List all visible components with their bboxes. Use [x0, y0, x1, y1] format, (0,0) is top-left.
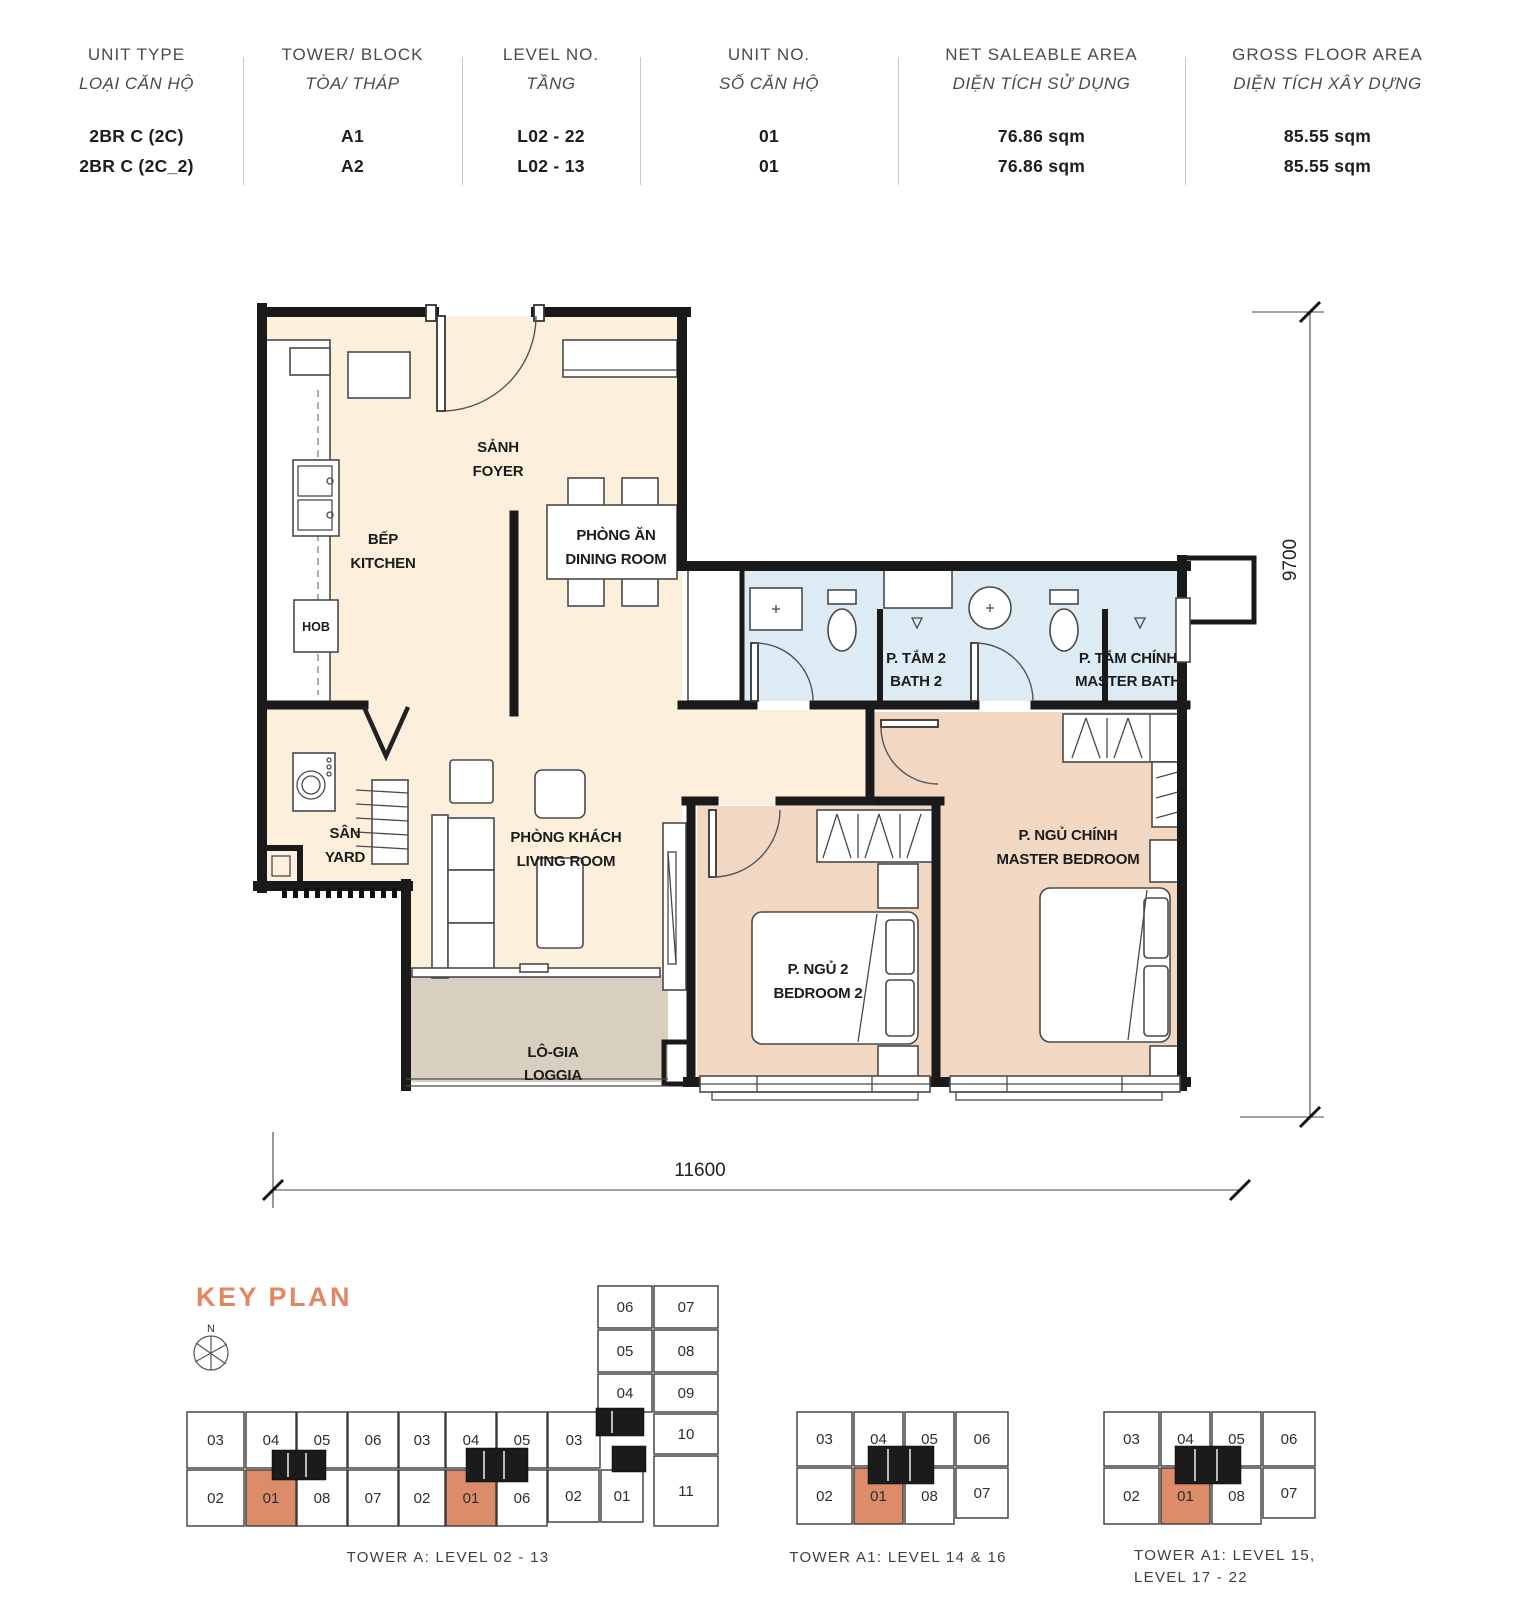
room-label-foyer-vi: SẢNH	[477, 439, 519, 456]
keyplan-unit-number: 05	[921, 1431, 938, 1448]
keyplan-unit-number: 07	[974, 1485, 991, 1502]
room-label-bath2-en: BATH 2	[890, 673, 942, 690]
nightstand	[878, 864, 918, 908]
keyplan-unit-number: 02	[1123, 1488, 1140, 1505]
keyplan-unit-number: 05	[617, 1343, 634, 1360]
keyplan-unit-number: 06	[617, 1299, 634, 1316]
room-label-dining-vi: PHÒNG ĂN	[576, 526, 655, 544]
room-label-living-vi: PHÒNG KHÁCH	[510, 828, 621, 846]
keyplan-unit-number: 03	[207, 1432, 224, 1449]
keyplan-unit-number: 01	[870, 1488, 887, 1505]
room-label-master-bath-vi: P. TẮM CHÍNH	[1079, 649, 1177, 667]
keyplan-unit-number: 05	[1228, 1431, 1245, 1448]
keyplan-unit-number: 07	[365, 1490, 382, 1507]
keyplan-section: KEY PLAN N 03040506030405030201080702010…	[0, 1240, 1531, 1616]
master-bedroom-door-leaf	[881, 720, 938, 727]
dimension-height: 9700	[1280, 539, 1301, 581]
keyplan-unit-number: 08	[921, 1488, 938, 1505]
nightstand	[1150, 840, 1178, 882]
bedroom2-door-leaf	[709, 810, 716, 877]
master-bath-window	[1176, 598, 1190, 662]
keyplan-unit-number: 10	[678, 1426, 695, 1443]
room-label-kitchen-vi: BẾP	[368, 531, 398, 548]
keyplan-unit-number: 09	[678, 1385, 695, 1402]
room-label-yard-vi: SÂN	[329, 824, 360, 842]
room-label-master-bedroom-vi: P. NGỦ CHÍNH	[1018, 826, 1117, 844]
keyplan-unit-number: 06	[514, 1490, 531, 1507]
entry-door-leaf	[437, 316, 445, 411]
keyplan-caption-tower-a1-15-line2: LEVEL 17 - 22	[1134, 1569, 1248, 1586]
keyplan-caption-tower-a1-15-line1: TOWER A1: LEVEL 15,	[1134, 1547, 1315, 1564]
keyplan-unit-number: 03	[816, 1431, 833, 1448]
keyplan-unit-number: 02	[414, 1490, 431, 1507]
room-label-dining-en: DINING ROOM	[565, 551, 666, 568]
room-label-yard-en: YARD	[325, 849, 366, 866]
keyplan-unit-number: 03	[1123, 1431, 1140, 1448]
keyplan-unit-number: 02	[565, 1488, 582, 1505]
keyplan-unit-number: 03	[414, 1432, 431, 1449]
room-label-master-bedroom-en: MASTER BEDROOM	[996, 851, 1139, 868]
keyplan-title: KEY PLAN	[196, 1282, 352, 1312]
compass-north-label: N	[207, 1323, 215, 1335]
floorplan-drawing: HOB	[0, 0, 1531, 1230]
sofa-back	[432, 815, 448, 978]
keyplan-unit-number: 05	[314, 1432, 331, 1449]
keyplan-cells: 0304050603040503020108070201060201060504…	[187, 1286, 1315, 1526]
pillow	[1144, 966, 1168, 1036]
keyplan-unit-number: 01	[263, 1490, 280, 1507]
master-wardrobe	[1063, 714, 1182, 762]
room-label-loggia-vi: LÔ-GIA	[527, 1043, 579, 1061]
room-label-living-en: LIVING ROOM	[517, 853, 616, 870]
keyplan-caption-tower-a: TOWER A: LEVEL 02 - 13	[347, 1549, 550, 1566]
keyplan-unit-number: 01	[1177, 1488, 1194, 1505]
keyplan-unit-number: 11	[678, 1483, 694, 1500]
keyplan-unit-number: 04	[617, 1385, 634, 1402]
room-label-kitchen-en: KITCHEN	[350, 555, 415, 572]
room-label-master-bath-en: MASTER BATH	[1075, 673, 1181, 690]
floorplan-brochure-page: UNIT TYPE LOẠI CĂN HỘ 2BR C (2C) 2BR C (…	[0, 0, 1531, 1616]
keyplan-unit-number: 02	[207, 1490, 224, 1507]
keyplan-caption-tower-a1-14-16: TOWER A1: LEVEL 14 & 16	[789, 1549, 1007, 1566]
bath2-toilet	[828, 590, 856, 604]
room-label-bath2-vi: P. TẮM 2	[886, 649, 946, 667]
room-label-bedroom2-vi: P. NGỦ 2	[788, 960, 849, 978]
sofa-seat	[448, 870, 494, 923]
bedroom2-wardrobe	[817, 810, 933, 862]
duct-shaft	[688, 566, 742, 701]
pillow	[886, 920, 914, 974]
dimension-width: 11600	[674, 1160, 725, 1181]
coffee-table	[535, 770, 585, 818]
keyplan-unit-number: 05	[514, 1432, 531, 1449]
keyplan-unit-number: 04	[263, 1432, 280, 1449]
bath2-door-leaf	[751, 643, 758, 701]
keyplan-unit-number: 01	[463, 1490, 480, 1507]
bath2-shelf	[884, 566, 952, 608]
room-label-foyer-en: FOYER	[473, 463, 524, 480]
keyplan-unit-number: 07	[678, 1299, 695, 1316]
keyplan-unit-number: 08	[1228, 1488, 1245, 1505]
keyplan-unit-number: 06	[1281, 1431, 1298, 1448]
pillow	[886, 980, 914, 1036]
keyplan-unit-number: 03	[566, 1432, 583, 1449]
keyplan-unit-number: 08	[678, 1343, 695, 1360]
compass-icon: N	[194, 1323, 228, 1370]
pillow	[1144, 898, 1168, 958]
keyplan-unit-number: 01	[614, 1488, 631, 1505]
tv-console	[663, 823, 686, 990]
hob-label: HOB	[302, 620, 330, 634]
side-table	[537, 858, 583, 948]
master-bath-toilet	[1050, 590, 1078, 604]
entry-closet	[563, 340, 677, 377]
keyplan-unit-number: 04	[870, 1431, 887, 1448]
keyplan-unit-number: 06	[365, 1432, 382, 1449]
keyplan-unit-number: 04	[1177, 1431, 1194, 1448]
keyplan-unit-number: 08	[314, 1490, 331, 1507]
room-label-bedroom2-en: BEDROOM 2	[773, 985, 862, 1002]
armchair	[450, 760, 493, 803]
master-bath-door-leaf	[971, 643, 978, 701]
keyplan-unit-number: 07	[1281, 1485, 1298, 1502]
sofa-seat	[448, 818, 494, 870]
shoe-cabinet	[348, 352, 410, 398]
keyplan-unit-number: 06	[974, 1431, 991, 1448]
exterior-ledge	[1182, 558, 1254, 622]
room-label-loggia-en: LOGGIA	[524, 1067, 582, 1084]
keyplan-unit-number: 04	[463, 1432, 480, 1449]
keyplan-unit-number: 02	[816, 1488, 833, 1505]
